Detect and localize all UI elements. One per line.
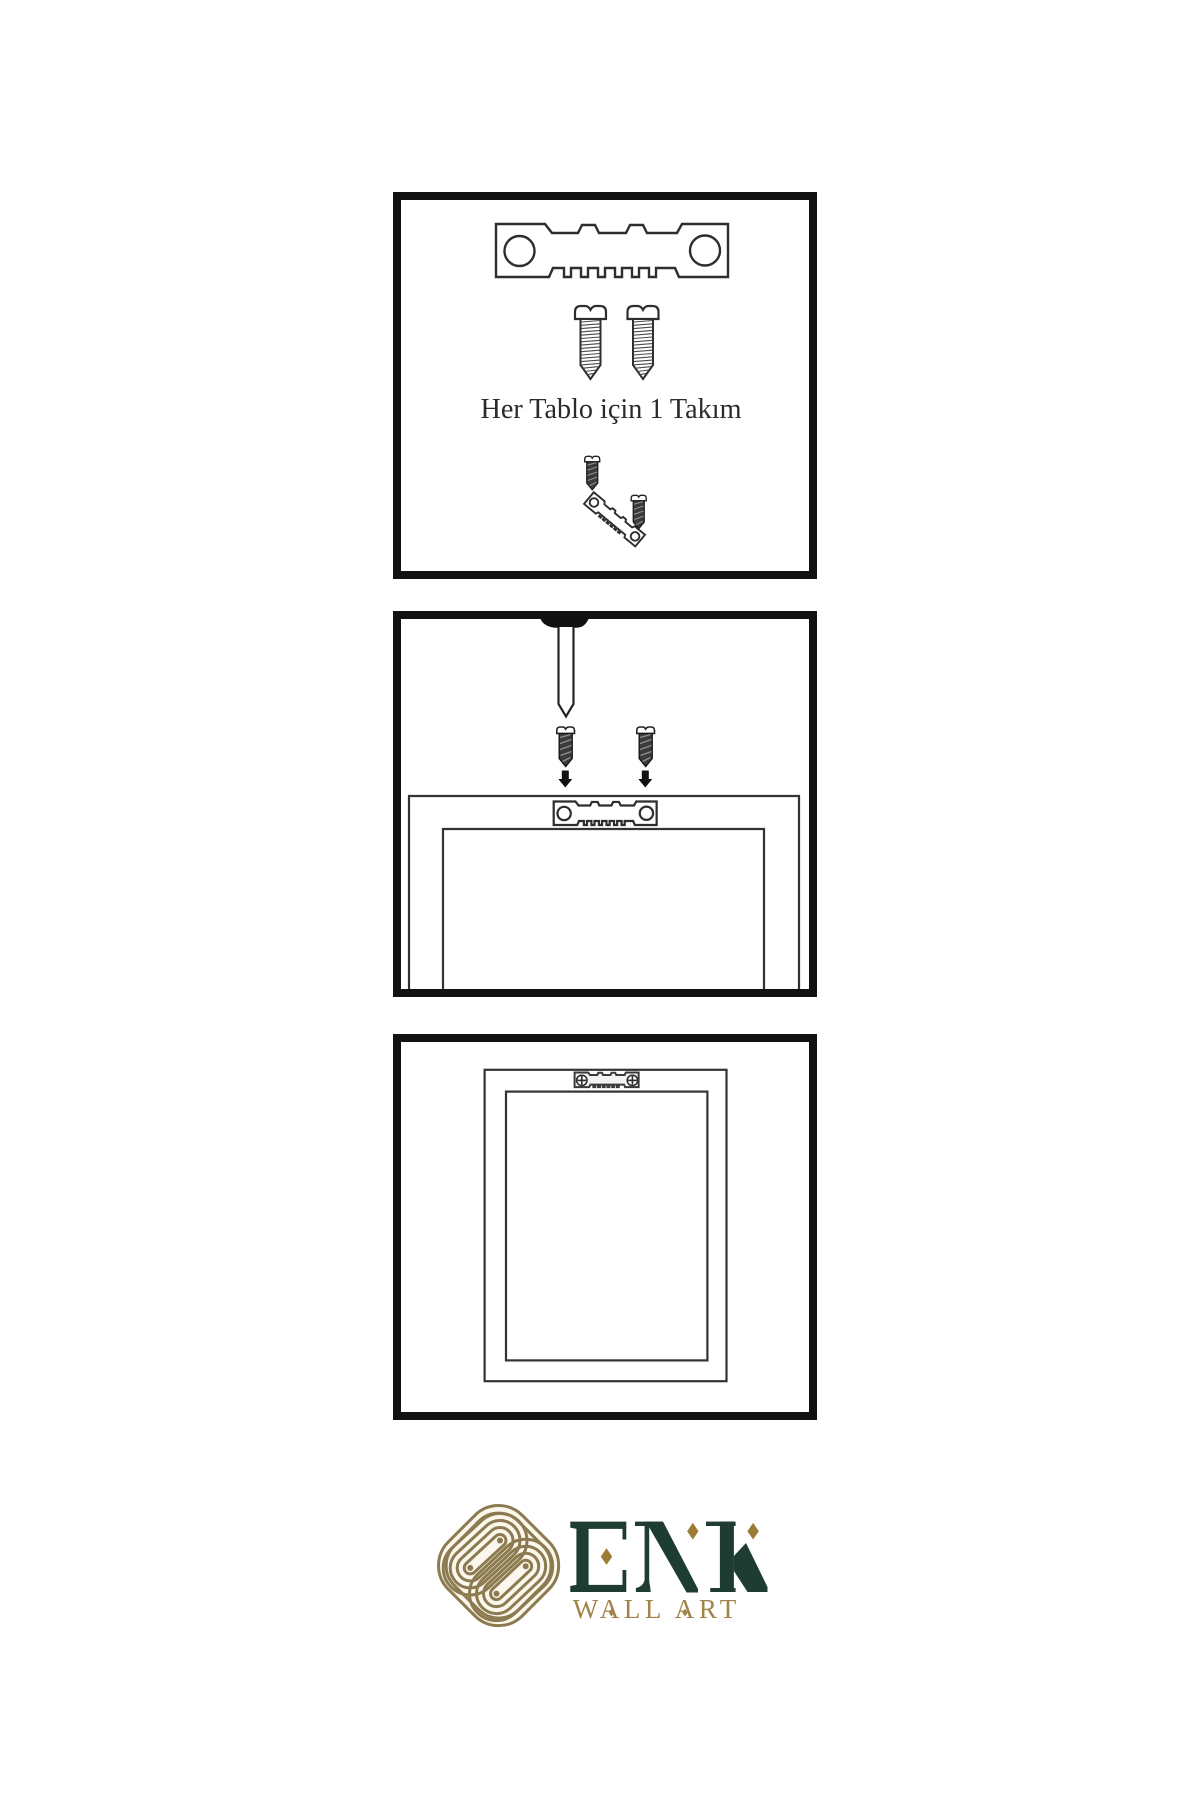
svg-text:Her Tablo için 1 Takım: Her Tablo için 1 Takım xyxy=(481,393,742,425)
